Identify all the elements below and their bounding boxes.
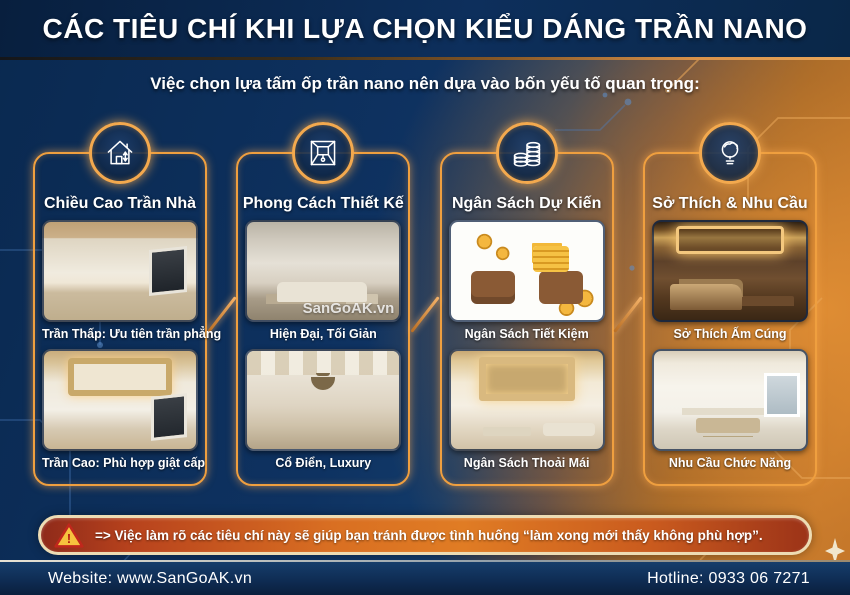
photo-caption: Sở Thích Ấm Cúng xyxy=(652,326,808,342)
footer-bar: Website: www.SanGoAK.vn Hotline: 0933 06… xyxy=(0,560,850,595)
page-title: CÁC TIÊU CHÍ KHI LỰA CHỌN KIỂU DÁNG TRẦN… xyxy=(43,13,808,45)
idea-bulb-icon xyxy=(714,137,746,169)
house-icon xyxy=(104,137,136,169)
photo-card: Ngân Sách Thoải Mái xyxy=(449,349,605,471)
photo-caption: Trần Cao: Phù hợp giật cấp xyxy=(42,455,198,471)
criteria-title: Chiều Cao Trần Nhà xyxy=(29,194,211,214)
svg-text:!: ! xyxy=(67,531,71,546)
infographic-poster: CÁC TIÊU CHÍ KHI LỰA CHỌN KIỂU DÁNG TRẦN… xyxy=(0,0,850,595)
photo-card: Sở Thích Ấm Cúng xyxy=(652,220,808,342)
criteria-icon-badge xyxy=(89,122,151,184)
photo-caption: Hiện Đại, Tối Giản xyxy=(245,326,401,342)
photo-caption: Nhu Cầu Chức Năng xyxy=(652,455,808,471)
photo-classic-dining-room xyxy=(245,349,401,451)
photo-modern-living-room: SanGoAK.vn xyxy=(245,220,401,322)
photo-home-office xyxy=(652,349,808,451)
photo-living-room-led-ceiling xyxy=(449,349,605,451)
photo-card: SanGoAK.vn Hiện Đại, Tối Giản xyxy=(245,220,401,342)
criteria-title: Ngân Sách Dự Kiến xyxy=(436,194,618,214)
footer-website: Website: www.SanGoAK.vn xyxy=(48,570,252,588)
coin-stacks-icon xyxy=(511,137,543,169)
criteria-column-budget: Ngân Sách Dự Kiến Ngân Sách Tiết Kiệm Ng… xyxy=(436,108,618,510)
photo-caption: Trần Thấp: Ưu tiên trần phẳng xyxy=(42,326,198,342)
warning-text: => Việc làm rõ các tiêu chí này sẽ giúp … xyxy=(95,528,763,543)
watermark: SanGoAK.vn xyxy=(303,300,395,317)
warning-row: ! => Việc làm rõ các tiêu chí này sẽ giú… xyxy=(0,510,850,560)
photo-wallets-coins xyxy=(449,220,605,322)
criteria-icon-badge xyxy=(496,122,558,184)
photo-card: Ngân Sách Tiết Kiệm xyxy=(449,220,605,342)
footer-hotline: Hotline: 0933 06 7271 xyxy=(647,570,810,588)
photo-caption: Cổ Điển, Luxury xyxy=(245,455,401,471)
photo-room-tiered-ceiling xyxy=(42,349,198,451)
criteria-title: Sở Thích & Nhu Cầu xyxy=(639,194,821,214)
photo-warm-bedroom xyxy=(652,220,808,322)
criteria-title: Phong Cách Thiết Kế xyxy=(232,194,414,214)
subtitle-row: Việc chọn lựa tấm ốp trần nano nên dựa v… xyxy=(0,60,850,108)
criteria-grid: Chiều Cao Trần Nhà Trần Thấp: Ưu tiên tr… xyxy=(0,108,850,510)
title-banner: CÁC TIÊU CHÍ KHI LỰA CHỌN KIỂU DÁNG TRẦN… xyxy=(0,0,850,57)
criteria-icon-badge xyxy=(292,122,354,184)
ceiling-perspective-icon xyxy=(307,137,339,169)
photo-card: Nhu Cầu Chức Năng xyxy=(652,349,808,471)
photo-caption: Ngân Sách Tiết Kiệm xyxy=(449,326,605,342)
criteria-icon-badge xyxy=(699,122,761,184)
photo-card: Trần Thấp: Ưu tiên trần phẳng xyxy=(42,220,198,342)
photo-card: Cổ Điển, Luxury xyxy=(245,349,401,471)
photo-room-flat-ceiling xyxy=(42,220,198,322)
criteria-column-design-style: Phong Cách Thiết Kế SanGoAK.vn Hiện Đại,… xyxy=(232,108,414,510)
warning-banner: ! => Việc làm rõ các tiêu chí này sẽ giú… xyxy=(38,515,812,555)
criteria-column-preference: Sở Thích & Nhu Cầu Sở Thích Ấm Cúng Nhu … xyxy=(639,108,821,510)
photo-card: Trần Cao: Phù hợp giật cấp xyxy=(42,349,198,471)
page-subtitle: Việc chọn lựa tấm ốp trần nano nên dựa v… xyxy=(150,74,699,94)
warning-triangle-icon: ! xyxy=(54,522,84,549)
criteria-column-ceiling-height: Chiều Cao Trần Nhà Trần Thấp: Ưu tiên tr… xyxy=(29,108,211,510)
photo-caption: Ngân Sách Thoải Mái xyxy=(449,455,605,471)
